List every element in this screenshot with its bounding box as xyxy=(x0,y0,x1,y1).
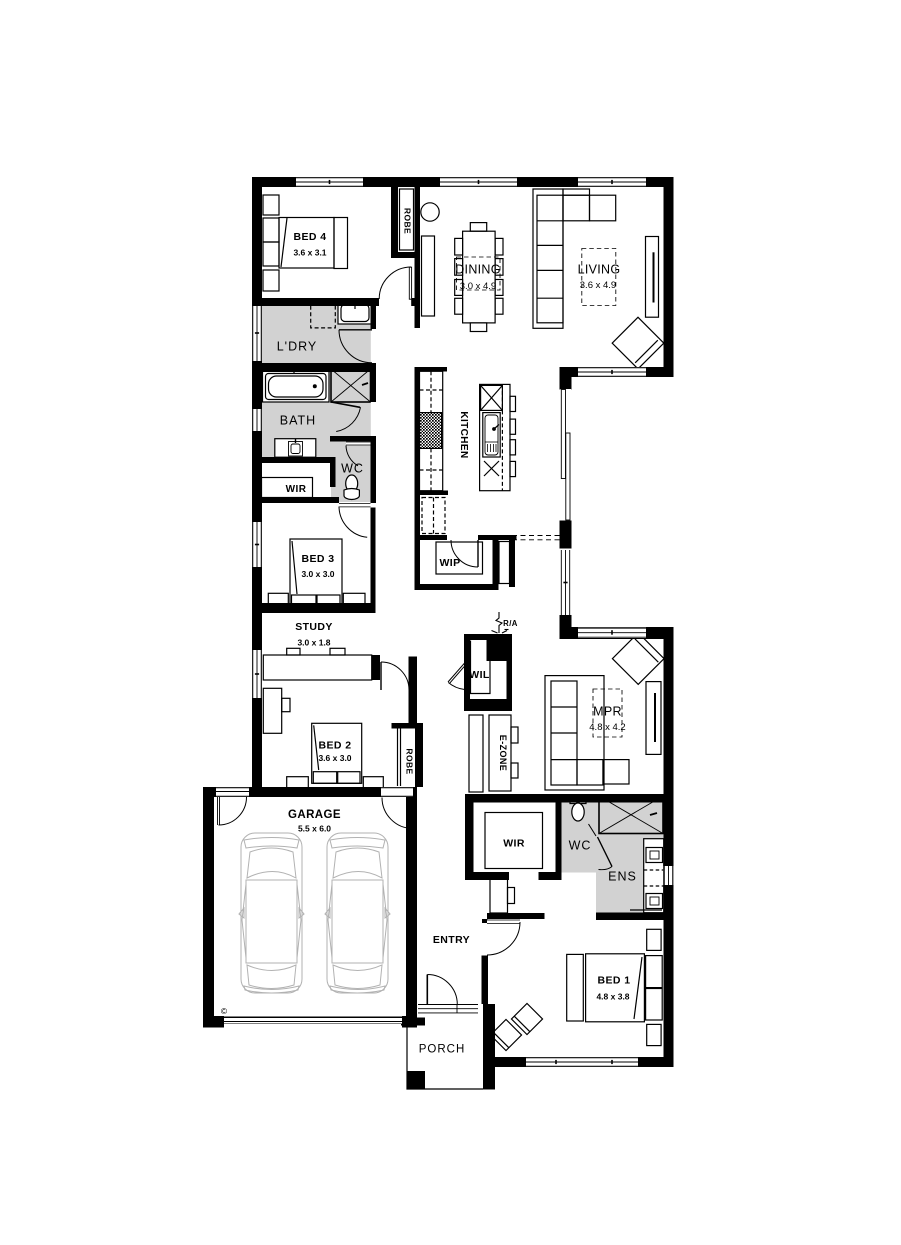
svg-text:KITCHEN: KITCHEN xyxy=(458,411,469,458)
svg-text:BED 2: BED 2 xyxy=(319,740,352,752)
svg-text:LIVING: LIVING xyxy=(578,263,621,277)
svg-text:BED 3: BED 3 xyxy=(302,553,335,565)
svg-text:BED 4: BED 4 xyxy=(294,231,327,243)
svg-text:ENTRY: ENTRY xyxy=(433,934,470,946)
svg-text:3.6 x 3.1: 3.6 x 3.1 xyxy=(293,248,326,258)
svg-text:WIR: WIR xyxy=(503,838,525,850)
svg-text:R/A: R/A xyxy=(503,619,518,628)
svg-text:BATH: BATH xyxy=(280,414,316,428)
svg-text:MPR: MPR xyxy=(593,705,622,719)
svg-text:4.8 x 3.8: 4.8 x 3.8 xyxy=(596,992,629,1002)
svg-text:ROBE: ROBE xyxy=(403,208,413,234)
svg-text:3.0 x 4.9: 3.0 x 4.9 xyxy=(460,281,496,292)
svg-text:WIP: WIP xyxy=(439,557,460,569)
svg-text:3.0 x 1.8: 3.0 x 1.8 xyxy=(297,638,330,648)
svg-text:WIL: WIL xyxy=(469,669,490,681)
svg-text:BED 1: BED 1 xyxy=(598,975,631,987)
svg-text:WC: WC xyxy=(341,462,364,476)
svg-text:E-ZONE: E-ZONE xyxy=(498,735,508,771)
svg-text:STUDY: STUDY xyxy=(295,621,333,633)
svg-text:3.6 x 3.0: 3.6 x 3.0 xyxy=(318,753,351,763)
svg-text:ENS: ENS xyxy=(608,870,637,884)
svg-text:5.5 x 6.0: 5.5 x 6.0 xyxy=(298,824,331,834)
svg-text:DINING: DINING xyxy=(455,263,501,277)
svg-text:GARAGE: GARAGE xyxy=(288,809,341,821)
svg-text:PORCH: PORCH xyxy=(419,1044,466,1056)
svg-text:ROBE: ROBE xyxy=(405,748,415,774)
svg-text:L'DRY: L'DRY xyxy=(277,340,318,354)
svg-text:WC: WC xyxy=(569,839,592,853)
svg-text:3.6 x 4.9: 3.6 x 4.9 xyxy=(580,280,616,291)
svg-text:4.8 x 4.2: 4.8 x 4.2 xyxy=(589,722,625,733)
svg-text:3.0 x 3.0: 3.0 x 3.0 xyxy=(301,569,334,579)
svg-text:WIR: WIR xyxy=(286,484,307,495)
svg-text:©: © xyxy=(221,1006,228,1016)
